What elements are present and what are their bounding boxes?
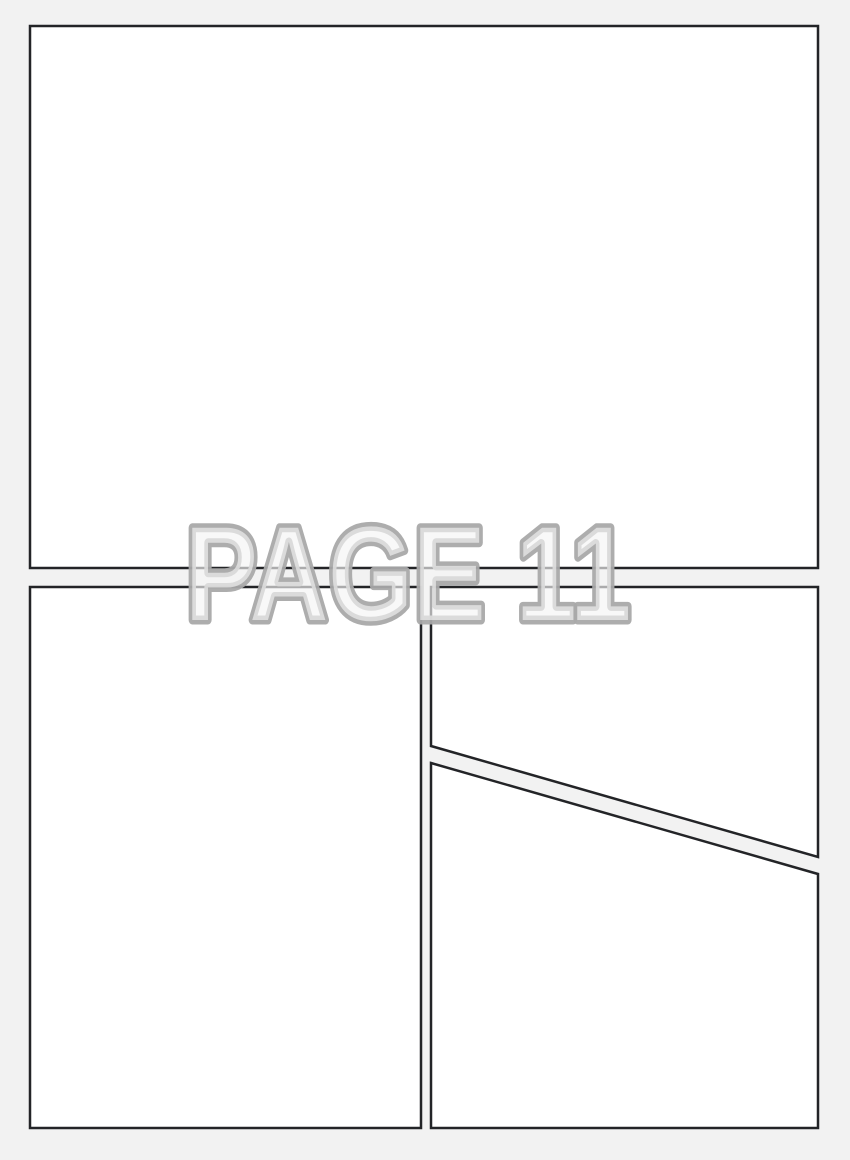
page-number-watermark: PAGE 11 [185, 500, 631, 649]
panel-top [30, 26, 818, 568]
panel-bottom-left [30, 587, 421, 1128]
comic-page-template: PAGE 11 PAGE 11 [0, 0, 850, 1160]
page-canvas: PAGE 11 PAGE 11 [0, 0, 850, 1160]
